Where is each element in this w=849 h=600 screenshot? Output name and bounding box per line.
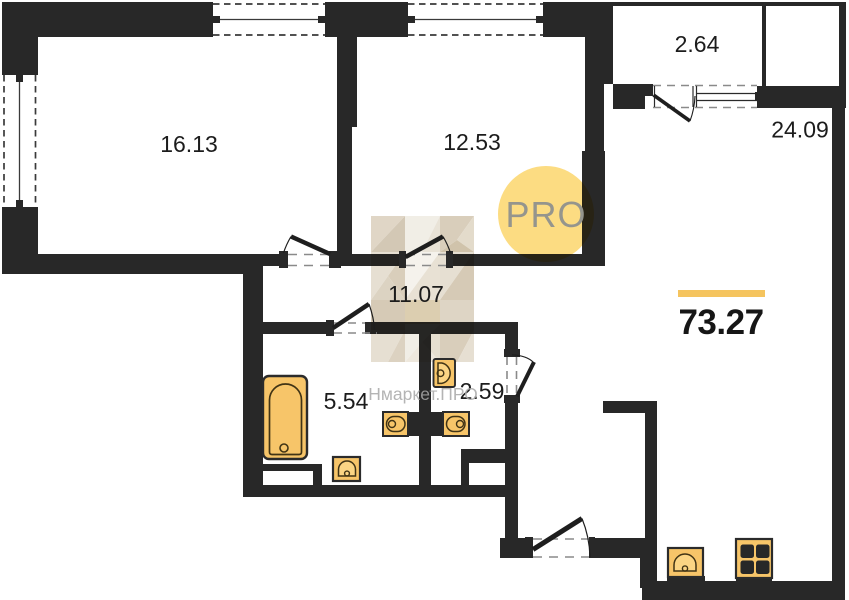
svg-text:16.13: 16.13 [160,131,218,157]
svg-text:2.64: 2.64 [675,31,720,57]
svg-text:73.27: 73.27 [678,303,763,342]
svg-text:24.09: 24.09 [771,117,829,143]
svg-text:PRO: PRO [505,194,586,235]
svg-text:12.53: 12.53 [443,129,501,155]
svg-text:Нмаркет.ПРО: Нмаркет.ПРО [368,384,478,404]
svg-text:5.54: 5.54 [324,388,369,414]
svg-text:11.07: 11.07 [388,281,444,307]
